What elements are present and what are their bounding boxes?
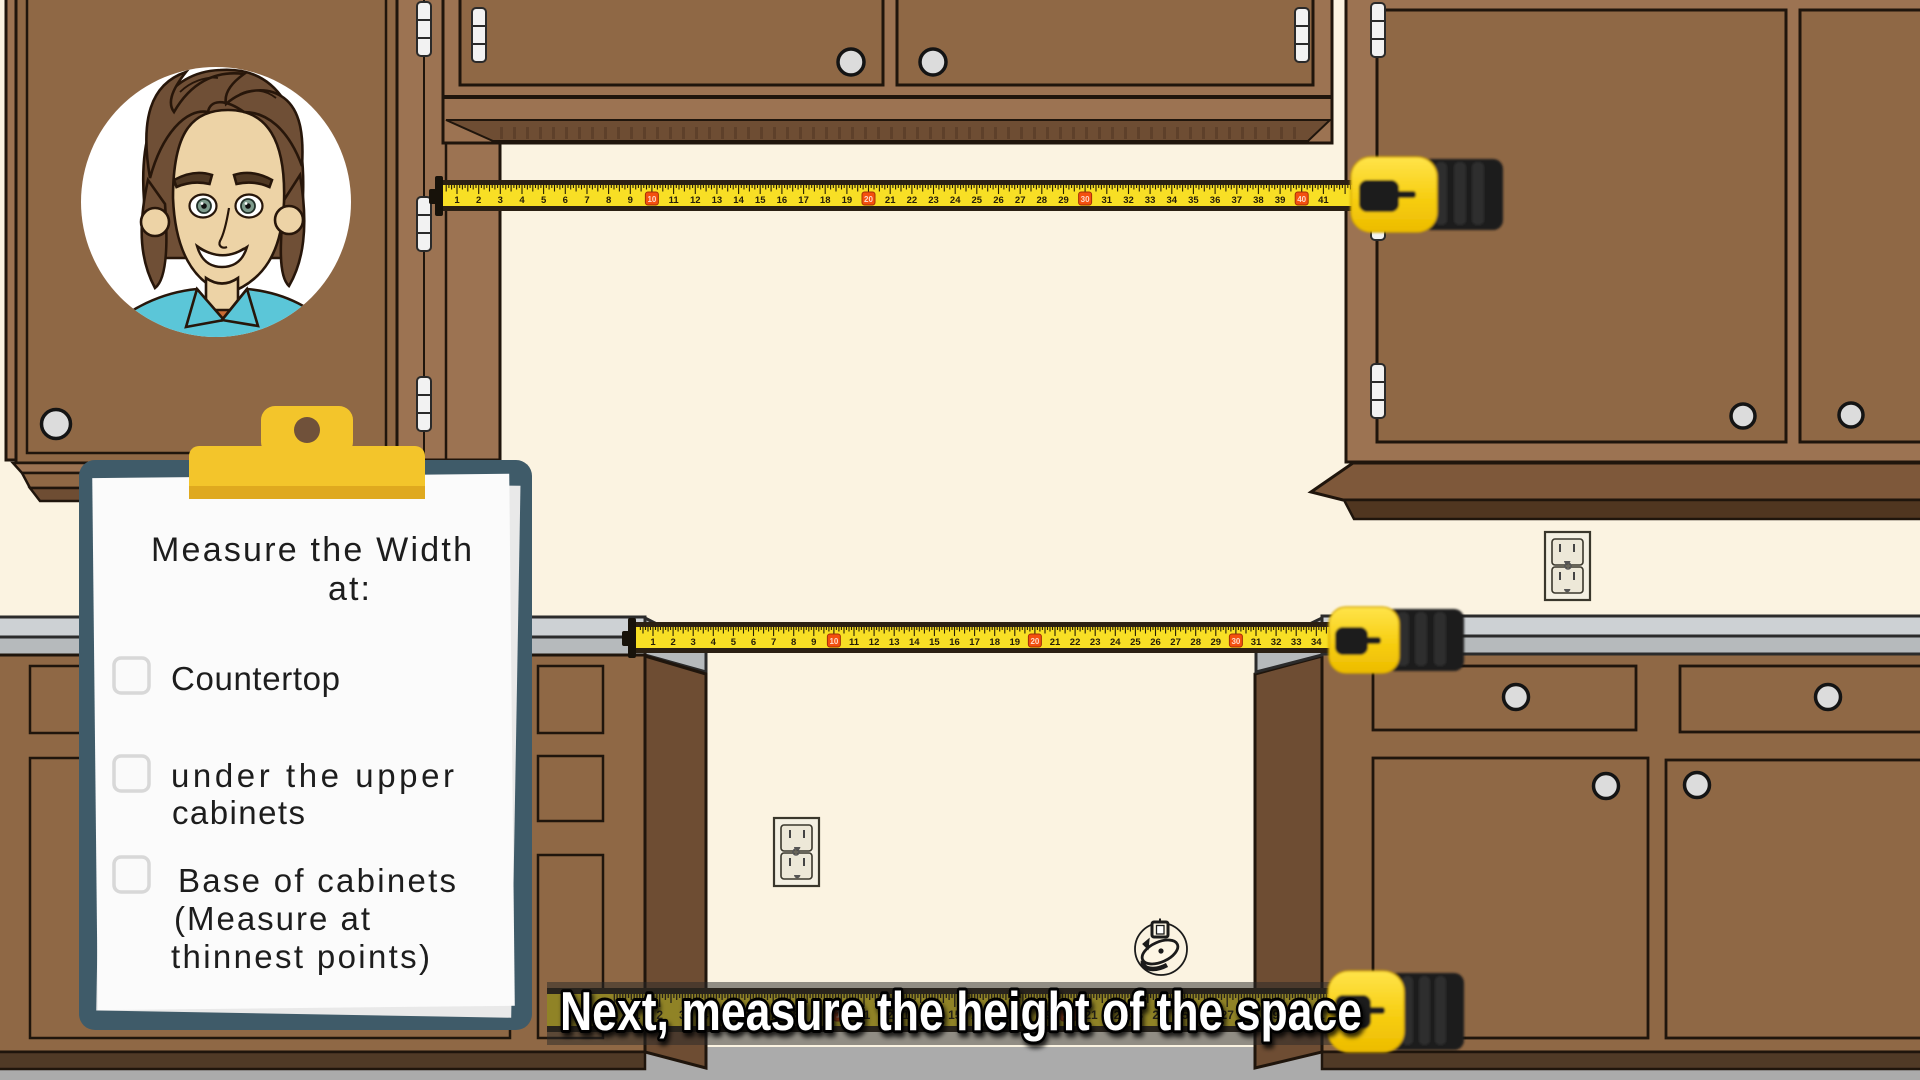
svg-text:34: 34 bbox=[1311, 637, 1322, 648]
svg-text:8: 8 bbox=[606, 195, 611, 206]
svg-text:13: 13 bbox=[712, 195, 723, 206]
svg-text:27: 27 bbox=[1015, 195, 1026, 206]
svg-text:10: 10 bbox=[829, 637, 838, 646]
svg-text:7: 7 bbox=[584, 195, 589, 206]
svg-text:34: 34 bbox=[1167, 195, 1178, 206]
svg-text:32: 32 bbox=[1123, 195, 1134, 206]
svg-text:24: 24 bbox=[1110, 637, 1121, 648]
svg-text:5: 5 bbox=[541, 195, 547, 206]
svg-text:13: 13 bbox=[889, 637, 900, 648]
svg-text:28: 28 bbox=[1190, 637, 1201, 648]
svg-text:31: 31 bbox=[1102, 195, 1113, 206]
svg-text:32: 32 bbox=[1271, 637, 1282, 648]
svg-text:10: 10 bbox=[647, 195, 656, 204]
svg-text:19: 19 bbox=[842, 195, 853, 206]
svg-text:26: 26 bbox=[993, 195, 1004, 206]
svg-text:35: 35 bbox=[1188, 195, 1199, 206]
svg-text:15: 15 bbox=[929, 637, 940, 648]
svg-text:3: 3 bbox=[498, 195, 503, 206]
svg-text:7: 7 bbox=[771, 637, 776, 648]
svg-text:thinnest points): thinnest points) bbox=[171, 938, 430, 975]
svg-text:17: 17 bbox=[969, 637, 980, 648]
svg-text:21: 21 bbox=[885, 195, 896, 206]
svg-text:3: 3 bbox=[691, 637, 696, 648]
svg-text:12: 12 bbox=[869, 637, 880, 648]
svg-text:18: 18 bbox=[989, 637, 1000, 648]
svg-text:Base of cabinets: Base of cabinets bbox=[178, 862, 456, 899]
svg-text:8: 8 bbox=[791, 637, 796, 648]
svg-text:33: 33 bbox=[1145, 195, 1156, 206]
svg-text:38: 38 bbox=[1253, 195, 1264, 206]
svg-text:2: 2 bbox=[670, 637, 675, 648]
svg-text:22: 22 bbox=[1070, 637, 1081, 648]
svg-text:18: 18 bbox=[820, 195, 831, 206]
svg-text:14: 14 bbox=[733, 195, 744, 206]
svg-text:22: 22 bbox=[907, 195, 918, 206]
svg-text:40: 40 bbox=[1297, 195, 1306, 204]
svg-text:12: 12 bbox=[690, 195, 701, 206]
svg-text:31: 31 bbox=[1251, 637, 1262, 648]
svg-text:19: 19 bbox=[1010, 637, 1021, 648]
svg-text:33: 33 bbox=[1291, 637, 1302, 648]
svg-text:41: 41 bbox=[1318, 195, 1329, 206]
svg-text:21: 21 bbox=[1050, 637, 1061, 648]
svg-text:4: 4 bbox=[711, 637, 717, 648]
svg-text:26: 26 bbox=[1150, 637, 1161, 648]
svg-text:6: 6 bbox=[563, 195, 568, 206]
svg-text:5: 5 bbox=[731, 637, 737, 648]
svg-text:24: 24 bbox=[950, 195, 961, 206]
svg-text:9: 9 bbox=[811, 637, 816, 648]
svg-text:Next, measure the height of th: Next, measure the height of the space bbox=[560, 980, 1362, 1042]
svg-text:9: 9 bbox=[628, 195, 633, 206]
svg-text:27: 27 bbox=[1170, 637, 1181, 648]
svg-text:at:: at: bbox=[328, 570, 370, 608]
svg-text:14: 14 bbox=[909, 637, 920, 648]
svg-text:cabinets: cabinets bbox=[172, 794, 305, 831]
svg-text:17: 17 bbox=[798, 195, 809, 206]
svg-text:16: 16 bbox=[949, 637, 960, 648]
svg-text:20: 20 bbox=[864, 195, 873, 204]
svg-text:16: 16 bbox=[777, 195, 788, 206]
svg-text:Measure the Width: Measure the Width bbox=[151, 531, 472, 569]
svg-text:39: 39 bbox=[1275, 195, 1286, 206]
svg-text:Countertop: Countertop bbox=[171, 660, 340, 697]
svg-text:25: 25 bbox=[972, 195, 983, 206]
svg-text:11: 11 bbox=[849, 637, 860, 648]
svg-text:6: 6 bbox=[751, 637, 756, 648]
svg-text:23: 23 bbox=[928, 195, 939, 206]
svg-text:1: 1 bbox=[454, 195, 460, 206]
svg-text:28: 28 bbox=[1037, 195, 1048, 206]
svg-text:36: 36 bbox=[1210, 195, 1221, 206]
svg-text:30: 30 bbox=[1081, 195, 1090, 204]
svg-text:20: 20 bbox=[1030, 637, 1039, 646]
svg-text:1: 1 bbox=[650, 637, 656, 648]
svg-text:11: 11 bbox=[669, 195, 680, 206]
svg-text:4: 4 bbox=[519, 195, 525, 206]
svg-text:2: 2 bbox=[476, 195, 481, 206]
svg-text:25: 25 bbox=[1130, 637, 1141, 648]
svg-text:15: 15 bbox=[755, 195, 766, 206]
svg-text:(Measure at: (Measure at bbox=[174, 900, 370, 937]
svg-text:30: 30 bbox=[1231, 637, 1240, 646]
svg-text:29: 29 bbox=[1058, 195, 1069, 206]
svg-text:23: 23 bbox=[1090, 637, 1101, 648]
svg-text:37: 37 bbox=[1232, 195, 1243, 206]
svg-text:29: 29 bbox=[1211, 637, 1222, 648]
